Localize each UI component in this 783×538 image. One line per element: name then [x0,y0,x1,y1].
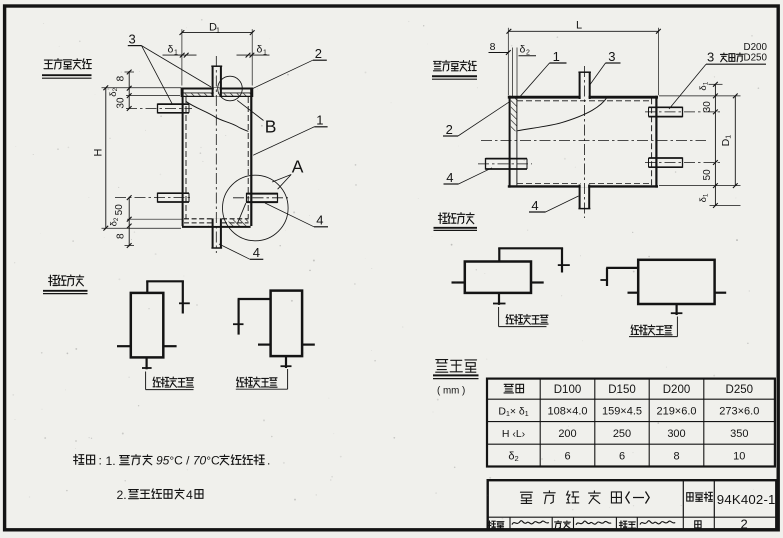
svg-text:D1× δ1: D1× δ1 [498,406,528,419]
svg-text:δ: δ [520,44,526,56]
svg-text:2: 2 [315,46,322,61]
svg-text:10: 10 [733,450,745,462]
svg-text:.: . [267,454,270,468]
svg-text:2: 2 [741,516,748,531]
svg-text:94K402-1: 94K402-1 [717,492,776,507]
svg-text:3: 3 [608,49,615,64]
svg-text:D200: D200 [744,42,768,53]
svg-text:3: 3 [707,49,714,64]
svg-text:A: A [292,157,304,177]
svg-text:8: 8 [116,75,127,81]
svg-text:50: 50 [702,169,713,181]
svg-text:108×4.0: 108×4.0 [547,406,587,418]
svg-text:6: 6 [564,450,570,462]
svg-text:250: 250 [613,428,631,440]
svg-text:2: 2 [446,122,453,137]
svg-text:4: 4 [186,488,193,502]
svg-text:2.: 2. [117,488,127,502]
svg-text:4: 4 [531,198,538,213]
svg-text:1: 1 [316,113,323,128]
svg-text:1: 1 [216,26,220,35]
svg-text:4: 4 [253,245,260,260]
svg-text:30: 30 [702,101,713,113]
svg-text:δ: δ [257,44,263,56]
svg-text:D100: D100 [554,384,582,396]
svg-text:4: 4 [446,170,453,185]
svg-text:1: 1 [553,49,560,64]
svg-text:1: 1 [174,50,178,57]
svg-text:D250: D250 [726,384,754,396]
svg-text:350: 350 [730,428,748,440]
svg-text:B: B [265,117,277,137]
svg-text:D250: D250 [744,53,768,64]
svg-text:50: 50 [114,204,125,216]
svg-text:6: 6 [619,450,625,462]
svg-text::: : [99,454,102,468]
svg-text:8: 8 [673,450,679,462]
svg-text:δ: δ [168,44,174,56]
svg-text:4: 4 [316,213,323,228]
svg-text:8: 8 [116,233,127,239]
svg-text:1.: 1. [106,454,116,468]
svg-text:3: 3 [129,32,136,47]
svg-text:219×6.0: 219×6.0 [656,406,696,418]
svg-text:30: 30 [115,97,126,109]
svg-text:273×6.0: 273×6.0 [719,406,759,418]
svg-text:300: 300 [667,428,685,440]
svg-text:L: L [576,20,582,32]
svg-text:( mm ): ( mm ) [437,385,465,396]
svg-text:H ‹L›: H ‹L› [502,428,526,440]
svg-text:200: 200 [558,428,576,440]
svg-text:159×4.5: 159×4.5 [602,406,642,418]
svg-text:D200: D200 [663,384,691,396]
svg-text:8: 8 [490,41,496,53]
svg-text:1: 1 [263,50,267,57]
svg-text:H: H [93,148,105,156]
svg-text:95°C / 70°C: 95°C / 70°C [156,454,220,468]
svg-text:D150: D150 [608,384,636,396]
